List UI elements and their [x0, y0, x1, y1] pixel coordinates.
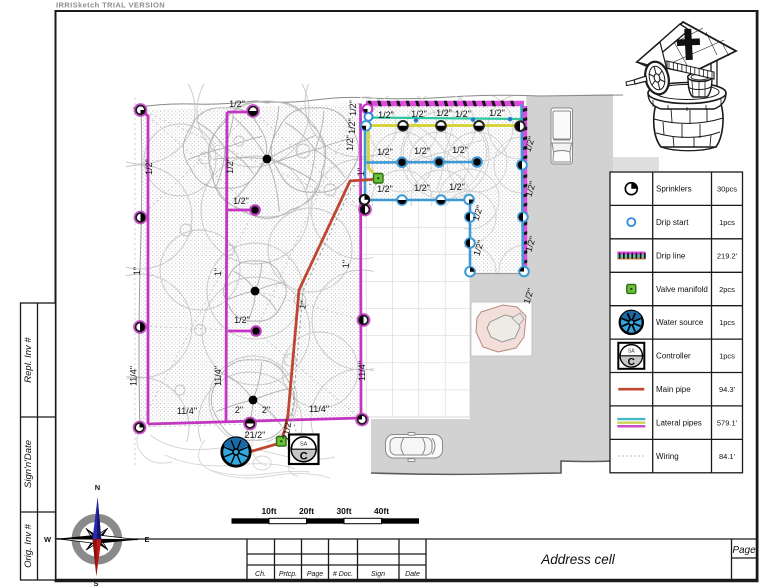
svg-text:1/2": 1/2": [377, 147, 393, 157]
svg-text:1/2": 1/2": [233, 196, 249, 206]
svg-text:1": 1": [132, 267, 142, 275]
svg-text:# Doc.: # Doc.: [333, 571, 353, 578]
svg-text:1/2": 1/2": [452, 145, 468, 155]
svg-text:Controller: Controller: [656, 352, 691, 361]
svg-text:11/4": 11/4": [357, 361, 367, 381]
svg-text:C: C: [300, 451, 308, 463]
svg-text:1/2": 1/2": [414, 183, 430, 193]
svg-text:1": 1": [341, 260, 351, 268]
svg-text:1pcs: 1pcs: [719, 318, 735, 327]
svg-text:1/2": 1/2": [348, 100, 358, 116]
svg-text:20ft: 20ft: [299, 506, 314, 516]
svg-text:E: E: [144, 535, 149, 544]
svg-text:N: N: [95, 483, 100, 492]
svg-text:11/4": 11/4": [177, 406, 197, 416]
svg-text:SA: SA: [300, 442, 308, 448]
svg-text:Drip start: Drip start: [656, 218, 689, 227]
svg-text:Lateral pipes: Lateral pipes: [656, 418, 702, 427]
svg-text:11/4": 11/4": [213, 366, 223, 386]
svg-text:1": 1": [213, 268, 223, 276]
svg-text:1/2": 1/2": [455, 109, 471, 119]
svg-text:10ft: 10ft: [261, 506, 276, 516]
svg-text:1/2": 1/2": [144, 159, 154, 175]
svg-text:2": 2": [235, 405, 243, 415]
svg-text:40ft: 40ft: [374, 506, 389, 516]
svg-text:1/2": 1/2": [347, 118, 357, 134]
svg-text:2": 2": [262, 405, 270, 415]
svg-text:84.1': 84.1': [719, 452, 736, 461]
svg-text:11/4": 11/4": [129, 366, 139, 386]
svg-text:11/4": 11/4": [309, 404, 329, 414]
svg-text:Repl. Inv #: Repl. Inv #: [23, 337, 34, 383]
svg-text:W: W: [44, 535, 52, 544]
svg-text:Date: Date: [405, 571, 420, 578]
svg-text:Sign: Sign: [371, 571, 385, 578]
svg-text:1/2": 1/2": [225, 158, 235, 174]
svg-text:94.3': 94.3': [719, 385, 736, 394]
svg-text:1": 1": [356, 168, 366, 176]
svg-text:1/2": 1/2": [489, 108, 505, 118]
svg-text:1/2": 1/2": [229, 99, 245, 109]
svg-text:C: C: [628, 357, 635, 368]
svg-text:1/2": 1/2": [345, 135, 355, 151]
svg-text:S: S: [93, 579, 98, 588]
svg-text:30ft: 30ft: [336, 506, 351, 516]
svg-text:1/2": 1/2": [377, 184, 393, 194]
svg-text:Main pipe: Main pipe: [656, 385, 691, 394]
svg-text:Wiring: Wiring: [656, 452, 679, 461]
svg-text:Water source: Water source: [656, 318, 704, 327]
svg-text:SA: SA: [628, 349, 635, 355]
svg-text:1/2": 1/2": [378, 110, 394, 120]
svg-text:Sign'n'Date: Sign'n'Date: [23, 440, 34, 488]
svg-text:1/2": 1/2": [449, 182, 465, 192]
svg-text:Drip line: Drip line: [656, 251, 686, 260]
svg-text:1/2": 1/2": [411, 109, 427, 119]
svg-text:Address cell: Address cell: [540, 552, 616, 567]
svg-text:Ch.: Ch.: [255, 571, 266, 578]
svg-text:Valve manifold: Valve manifold: [656, 285, 708, 294]
svg-text:219.2': 219.2': [717, 251, 738, 260]
svg-text:1/2": 1/2": [234, 315, 250, 325]
svg-text:1/2": 1/2": [414, 146, 430, 156]
svg-text:30pcs: 30pcs: [717, 185, 737, 194]
svg-text:1pcs: 1pcs: [719, 218, 735, 227]
svg-text:Sprinklers: Sprinklers: [656, 185, 692, 194]
svg-text:IRRISketch TRIAL VERSION: IRRISketch TRIAL VERSION: [56, 1, 165, 10]
svg-text:1/2": 1/2": [436, 108, 452, 118]
svg-text:Orig. Inv #: Orig. Inv #: [23, 523, 34, 568]
svg-text:Page: Page: [307, 571, 323, 578]
svg-text:Page: Page: [732, 545, 756, 556]
svg-text:1pcs: 1pcs: [719, 352, 735, 361]
svg-text:Prtcp.: Prtcp.: [279, 571, 297, 578]
svg-text:579.1': 579.1': [717, 418, 738, 427]
svg-text:2pcs: 2pcs: [719, 285, 735, 294]
svg-text:21/2": 21/2": [245, 430, 266, 440]
